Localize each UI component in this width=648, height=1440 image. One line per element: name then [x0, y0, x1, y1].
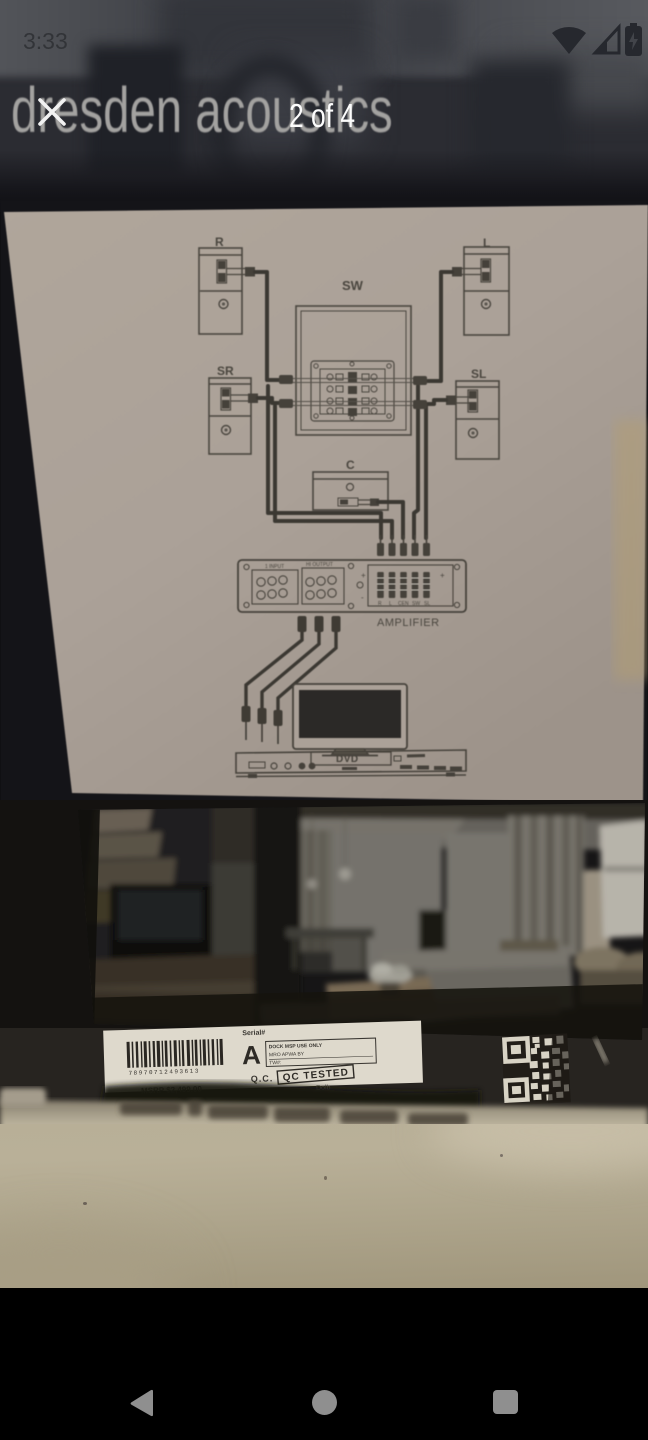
svg-text:R: R	[215, 235, 224, 249]
svg-text:SR: SR	[217, 364, 234, 378]
svg-text:SL: SL	[424, 601, 430, 607]
svg-text:L: L	[483, 236, 490, 250]
svg-text:SW: SW	[412, 601, 420, 607]
svg-text:C: C	[346, 458, 355, 472]
svg-text:SL: SL	[471, 367, 486, 381]
svg-text:TW#:: TW#:	[269, 1060, 281, 1066]
svg-text:-: -	[361, 593, 364, 602]
svg-text:+: +	[361, 571, 366, 580]
svg-text:SW: SW	[342, 278, 364, 293]
svg-text:+: +	[440, 571, 445, 580]
svg-text:Q.C.: Q.C.	[251, 1073, 274, 1084]
svg-text:HI OUTPUT: HI OUTPUT	[306, 562, 333, 568]
svg-text:CEN: CEN	[398, 601, 409, 607]
svg-text:A: A	[242, 1040, 262, 1071]
svg-text:MRO APWA BY: MRO APWA BY	[269, 1051, 305, 1058]
svg-text:L: L	[389, 601, 392, 607]
svg-text:AMPLIFIER: AMPLIFIER	[377, 617, 440, 629]
svg-text:DVD: DVD	[336, 754, 359, 765]
svg-text:Serial#: Serial#	[242, 1030, 265, 1038]
svg-text:1 INPUT: 1 INPUT	[265, 564, 284, 570]
svg-text:R: R	[378, 601, 382, 607]
